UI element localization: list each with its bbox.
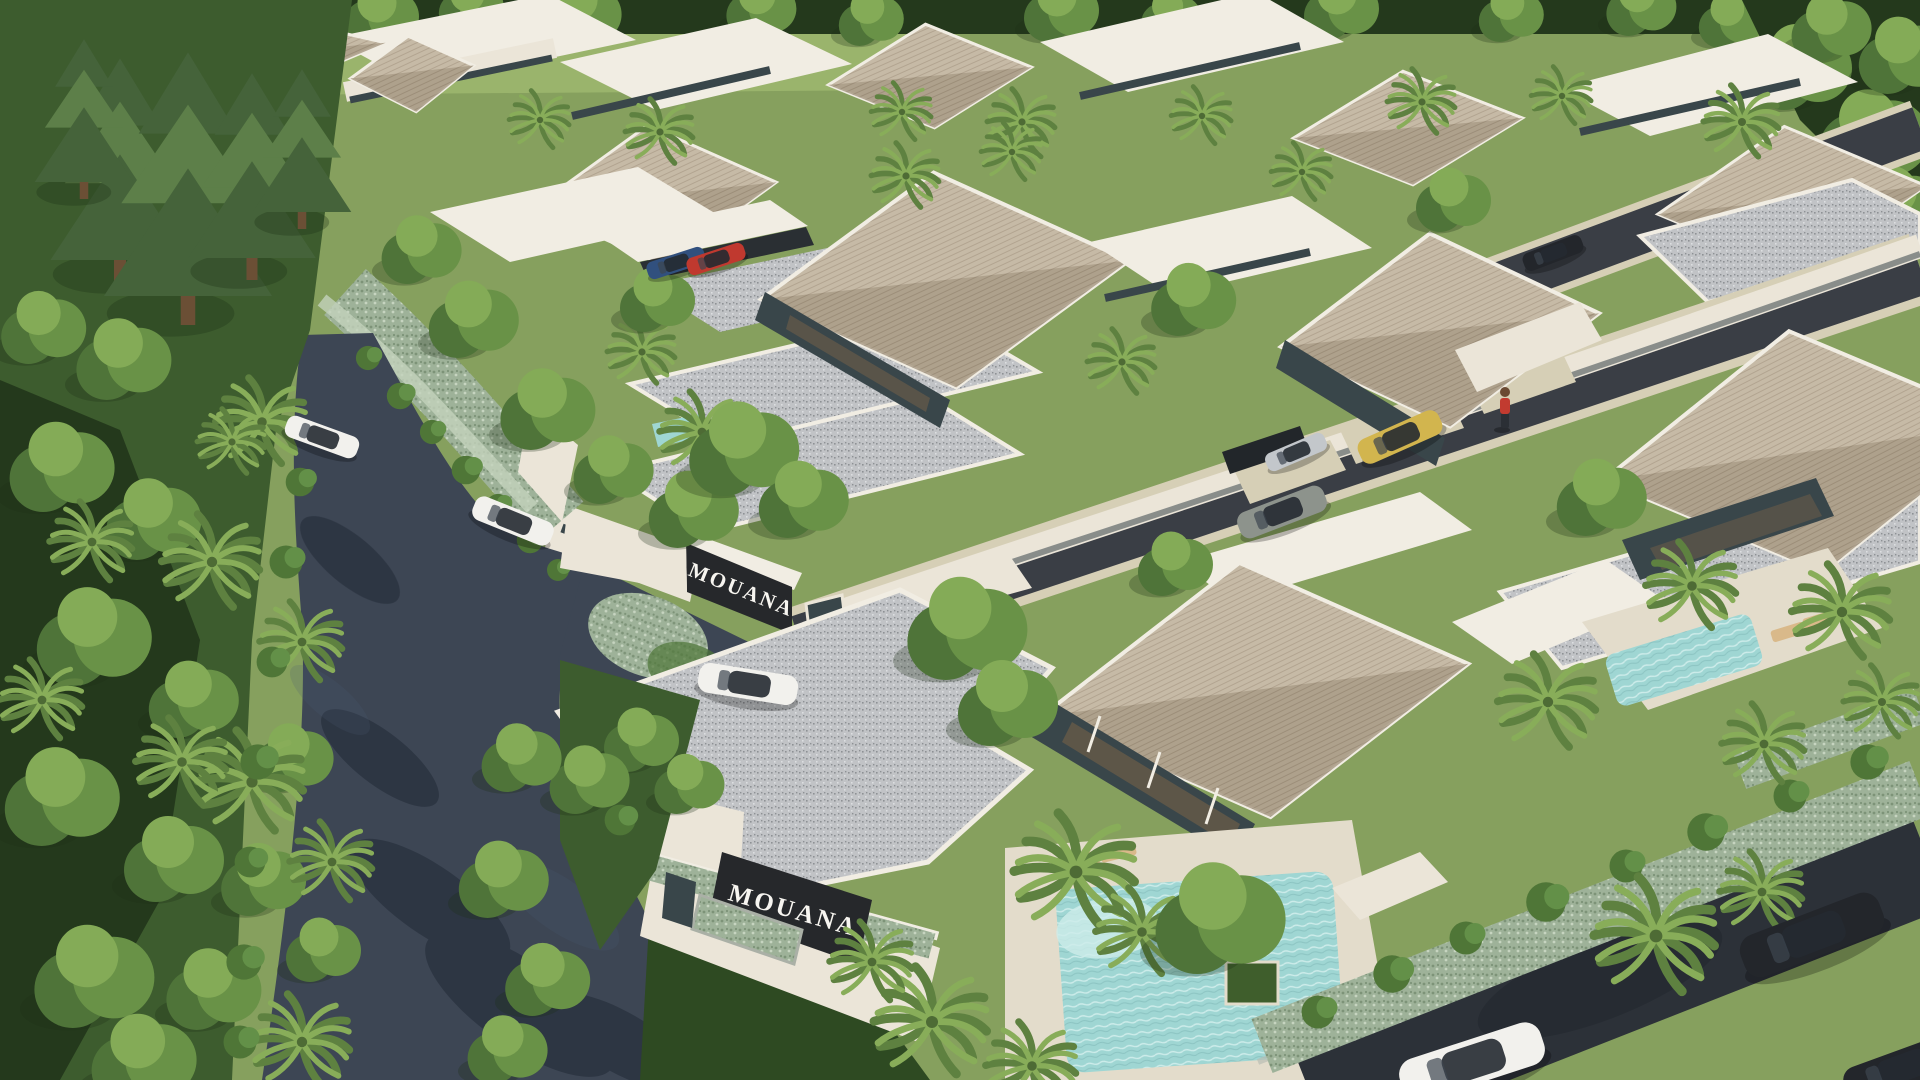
scene-render: MOUANA MOUANA [0,0,1920,1080]
window [662,872,696,928]
tree-planter [1226,962,1278,1004]
aerial-render-canvas: MOUANA MOUANA [0,0,1920,1080]
